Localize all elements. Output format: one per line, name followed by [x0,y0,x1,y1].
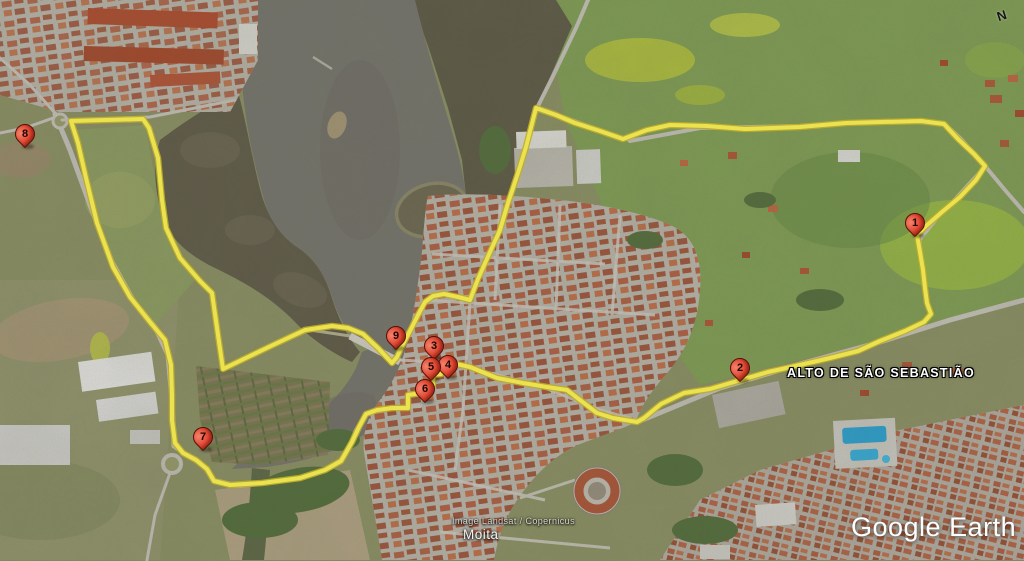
marker-number: 8 [16,125,34,143]
marker-number: 2 [731,359,749,377]
marker-number: 5 [422,358,440,376]
imagery-attribution: Image Landsat / Copernicus [452,516,575,526]
marker-number: 6 [416,380,434,398]
marker-number: 4 [439,356,457,374]
satellite-map[interactable] [0,0,1024,561]
marker-number: 7 [194,428,212,446]
marker-number: 1 [906,214,924,232]
city-label: Moita [463,527,499,542]
marker-number: 3 [425,337,443,355]
google-earth-viewport[interactable]: 123456789 ALTO DE SÃO SEBASTIÃO Image La… [0,0,1024,561]
google-earth-logo: Google Earth [851,512,1016,543]
place-label: ALTO DE SÃO SEBASTIÃO [787,366,975,380]
marker-number: 9 [387,327,405,345]
